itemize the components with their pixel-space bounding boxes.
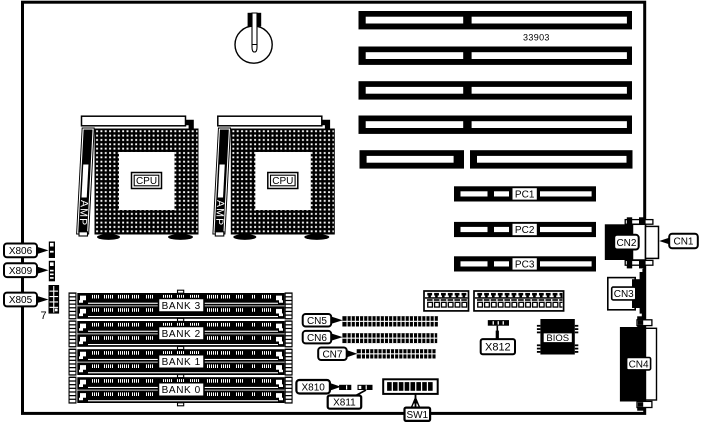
svg-text:X812: X812 xyxy=(485,342,511,354)
svg-text:33903: 33903 xyxy=(523,33,550,43)
svg-text:BANK 2: BANK 2 xyxy=(162,329,201,340)
svg-text:SW1: SW1 xyxy=(406,410,428,421)
svg-text:PC1: PC1 xyxy=(515,190,535,201)
svg-text:PC2: PC2 xyxy=(515,225,535,236)
svg-text:CN6: CN6 xyxy=(307,333,327,344)
svg-text:X806: X806 xyxy=(9,246,33,257)
svg-text:X805: X805 xyxy=(9,295,33,306)
svg-text:CN7: CN7 xyxy=(322,349,342,360)
svg-text:CN2: CN2 xyxy=(616,238,636,249)
svg-text:7: 7 xyxy=(41,310,47,322)
svg-text:X809: X809 xyxy=(9,266,33,277)
svg-text:AMP: AMP xyxy=(213,200,226,226)
svg-text:BANK 0: BANK 0 xyxy=(162,385,201,396)
svg-text:CN1: CN1 xyxy=(673,237,693,248)
svg-text:CN5: CN5 xyxy=(307,316,327,327)
svg-text:CPU: CPU xyxy=(136,176,157,187)
svg-text:PC3: PC3 xyxy=(515,260,535,271)
svg-text:CPU: CPU xyxy=(272,176,293,187)
svg-text:X811: X811 xyxy=(333,398,356,409)
svg-text:X810: X810 xyxy=(301,382,325,393)
svg-text:BANK 1: BANK 1 xyxy=(162,357,201,368)
svg-text:CN3: CN3 xyxy=(614,289,634,300)
svg-text:AMP: AMP xyxy=(77,200,90,226)
svg-text:BANK 3: BANK 3 xyxy=(162,301,201,312)
svg-text:CN4: CN4 xyxy=(629,359,649,370)
svg-text:BIOS: BIOS xyxy=(546,333,569,344)
